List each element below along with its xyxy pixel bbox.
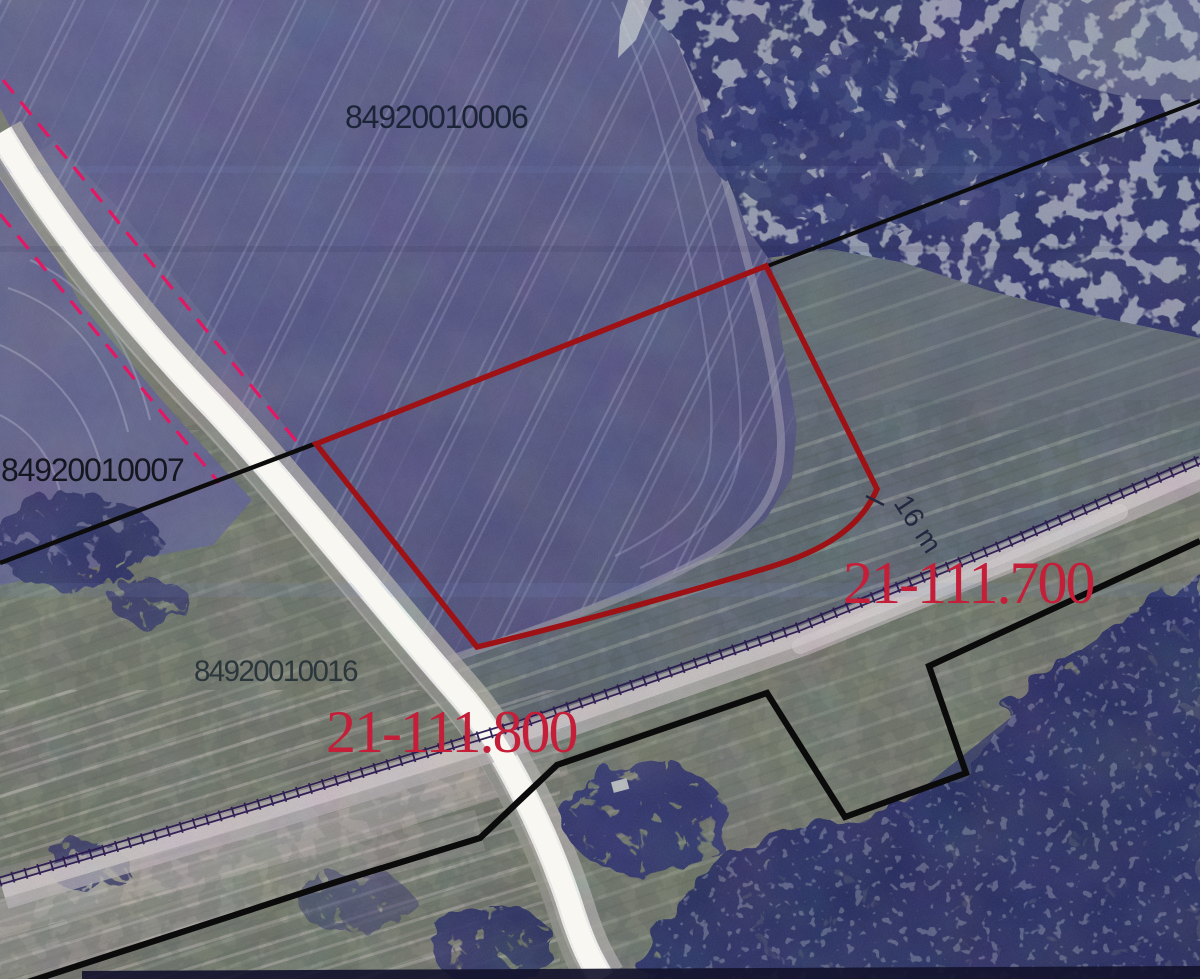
svg-text:21-111.800: 21-111.800 bbox=[326, 699, 577, 765]
svg-text:84920010006: 84920010006 bbox=[345, 99, 528, 135]
svg-text:21-111.700: 21-111.700 bbox=[843, 550, 1094, 616]
svg-text:84920010016: 84920010016 bbox=[194, 655, 358, 688]
svg-text:84920010007: 84920010007 bbox=[1, 452, 184, 488]
